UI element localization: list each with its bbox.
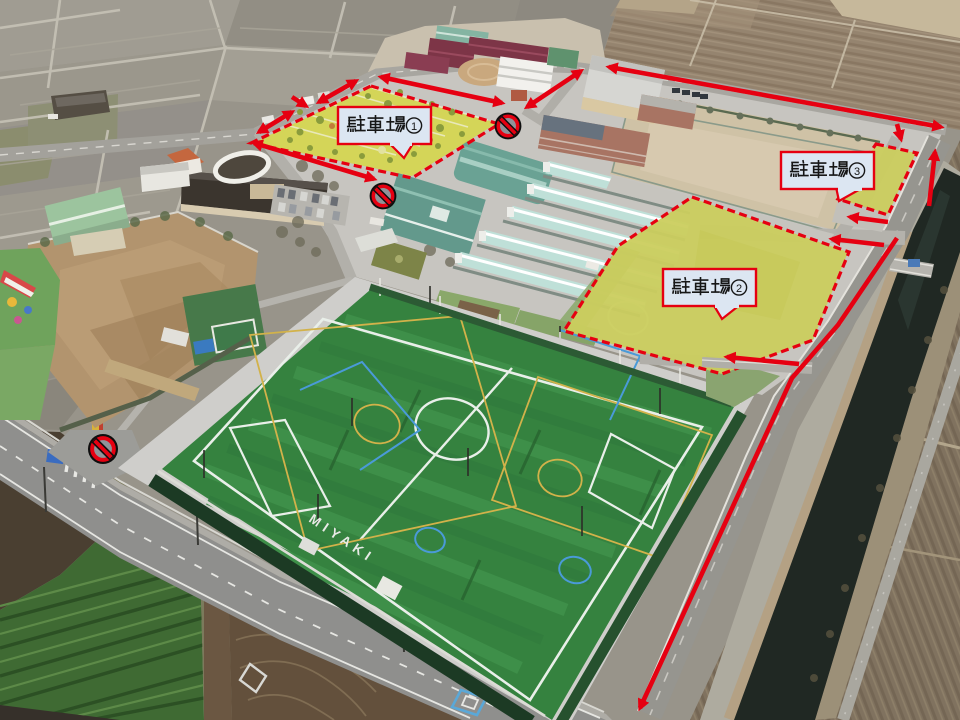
svg-text:2: 2: [736, 283, 742, 295]
svg-text:3: 3: [854, 166, 860, 178]
svg-text:1: 1: [411, 121, 417, 133]
